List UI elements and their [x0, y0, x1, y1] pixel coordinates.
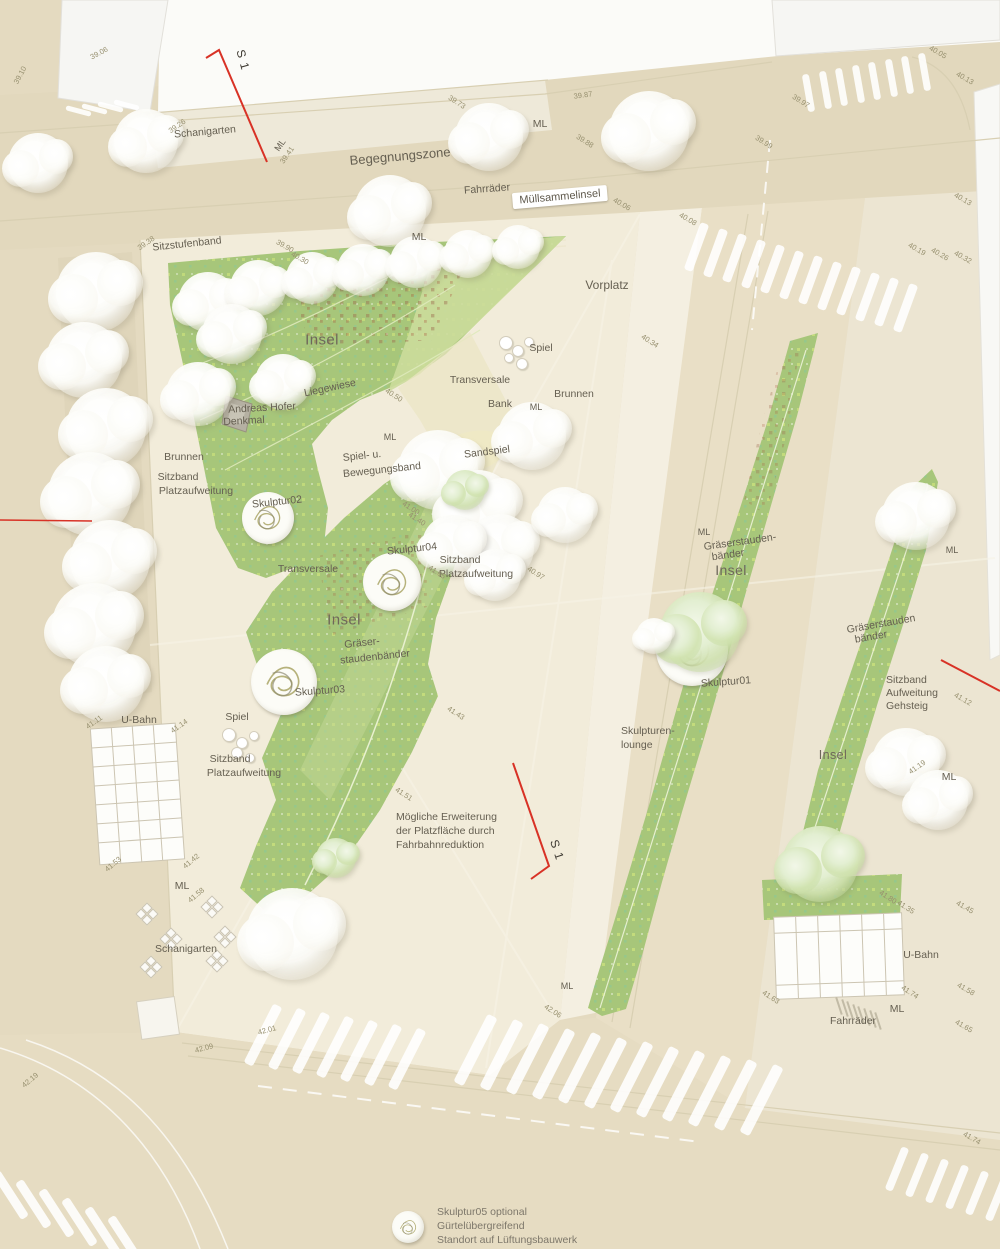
elevation-marker: 39.06: [89, 45, 110, 62]
elevation-marker: 39.90: [275, 237, 296, 254]
label-sitzband-4a: Sitzband: [886, 674, 927, 686]
label-ml-9: ML: [946, 545, 959, 555]
elevation-marker: 39.26: [167, 117, 188, 135]
elevation-marker: 41.58: [956, 980, 977, 997]
label-transversale-1: Transversale: [450, 374, 510, 386]
elevation-marker: 40.06: [612, 195, 633, 212]
label-brunnen-1: Brunnen: [554, 388, 594, 400]
label-sitzband-2b: Platzaufweitung: [439, 568, 513, 580]
elevation-marker: 40.05: [928, 43, 949, 60]
label-spielband-2: Bewegungsband: [342, 460, 421, 480]
elevation-marker: 42.01: [257, 1023, 277, 1037]
label-fahrraeder-2: Fahrräder: [830, 1015, 876, 1027]
label-lounge-1: Skulpturen-: [621, 725, 675, 737]
elevation-marker: 39.41: [278, 145, 296, 166]
elevation-marker: 41.11: [84, 713, 104, 731]
elevation-marker: 40.50: [384, 386, 405, 404]
label-skulptur04: Skulptur04: [386, 540, 437, 557]
elevation-marker: 40.19: [907, 240, 928, 257]
elevation-marker: 39.88: [575, 132, 596, 150]
label-schanigarten-2: Schanigarten: [155, 943, 217, 955]
labels-layer: SchanigartenMLBegegnungszoneFahrräderMLM…: [0, 0, 1000, 1249]
label-ml-2: ML: [533, 118, 548, 130]
label-begegnungszone: Begegnungszone: [349, 144, 451, 168]
elevation-marker: 41.14: [169, 717, 190, 735]
elevation-marker: 41.80: [878, 888, 899, 906]
label-sk05-2: Gürtelübergreifend: [437, 1220, 525, 1232]
label-sitzband-4c: Gehsteig: [886, 700, 928, 712]
elevation-marker: 41.65: [954, 1017, 975, 1034]
label-andreas-hofer-1: Andreas Hofer: [228, 400, 296, 416]
label-spiel-2: Spiel: [225, 711, 248, 723]
label-sitzband-1a: Sitzband: [158, 471, 199, 483]
label-sitzband-1b: Platzaufweitung: [159, 485, 233, 497]
label-erweiterung-1: Mögliche Erweiterung: [396, 811, 497, 823]
site-plan: SchanigartenMLBegegnungszoneFahrräderMLM…: [0, 0, 1000, 1249]
label-sitzstufenband: Sitzstufenband: [152, 234, 222, 253]
label-sitzband-3b: Platzaufweitung: [207, 767, 281, 779]
label-s1-top: S 1: [234, 48, 253, 72]
label-andreas-hofer-2: Denkmal: [223, 414, 265, 428]
elevation-marker: 41.42: [181, 852, 201, 871]
elevation-marker: 41.35: [896, 898, 917, 916]
label-sk05-3: Standort auf Lüftungsbauwerk: [437, 1234, 577, 1246]
label-ml-4: ML: [530, 402, 543, 412]
label-ubahn-2: U-Bahn: [903, 949, 939, 961]
label-sk05-1: Skulptur05 optional: [437, 1206, 527, 1218]
elevation-marker: 41.74: [962, 1129, 983, 1146]
elevation-marker: 39.97: [791, 92, 812, 110]
elevation-marker: 41.40: [407, 510, 428, 528]
label-liegewiese: Liegewiese: [303, 377, 357, 400]
elevation-marker: 40.97: [526, 564, 547, 582]
elevation-marker: 39.87: [573, 89, 593, 101]
elevation-marker: 40.32: [953, 248, 974, 265]
label-ml-6: ML: [175, 880, 190, 892]
label-schanigarten-top: Schanigarten: [174, 123, 237, 140]
label-skulptur01: Skulptur01: [701, 674, 752, 689]
label-ubahn-1: U-Bahn: [121, 714, 157, 726]
elevation-marker: 42.06: [543, 1002, 564, 1020]
elevation-marker: 41.65: [427, 563, 448, 581]
elevation-marker: 40.13: [955, 69, 976, 86]
label-spielband-1: Spiel- u.: [342, 448, 382, 464]
elevation-marker: 41.00: [401, 499, 422, 517]
label-muellsammelinsel: Müllsammelinsel: [512, 185, 608, 209]
label-erweiterung-2: der Platzfläche durch: [396, 825, 495, 837]
label-graeser-b1: Gräser-: [344, 635, 381, 651]
elevation-marker: 41.63: [761, 988, 782, 1006]
label-graeser-d2: bänder: [854, 628, 888, 645]
label-s1-bottom: S 1: [547, 838, 567, 862]
label-graeser-b2: staudenbänder: [340, 647, 411, 666]
elevation-marker: 39.38: [136, 234, 157, 252]
label-insel-a: Insel: [305, 332, 339, 349]
label-brunnen-2: Brunnen: [164, 451, 204, 463]
label-ml-7: ML: [698, 527, 711, 537]
label-graeser-c2: bänder: [711, 547, 745, 563]
elevation-marker: 41.45: [955, 898, 976, 915]
label-sitzband-3a: Sitzband: [210, 753, 251, 765]
label-ml-8: ML: [942, 771, 957, 783]
elevation-marker: 41.53: [103, 855, 123, 874]
elevation-marker: 39.10: [12, 65, 29, 86]
label-fahrraeder-top: Fahrräder: [464, 181, 511, 196]
label-erweiterung-3: Fahrbahnreduktion: [396, 839, 484, 851]
label-ml-10: ML: [890, 1003, 905, 1015]
elevation-marker: 41.12: [953, 690, 974, 707]
elevation-marker: 40.26: [930, 245, 951, 262]
label-bank: Bank: [488, 398, 512, 410]
elevation-marker: 40.34: [640, 332, 661, 350]
label-sandspiel: Sandspiel: [463, 443, 510, 461]
elevation-marker: 41.43: [446, 704, 467, 722]
label-ml-1: ML: [272, 137, 287, 153]
label-graeser-d1: Gräserstauden: [846, 612, 916, 636]
elevation-marker: 42.19: [20, 1071, 40, 1090]
elevation-marker: 40.13: [953, 190, 974, 207]
label-vorplatz: Vorplatz: [585, 278, 628, 292]
label-sitzband-4b: Aufweitung: [886, 687, 938, 699]
label-sitzband-2a: Sitzband: [440, 554, 481, 566]
label-graeser-c1: Gräserstauden-: [703, 531, 777, 553]
elevation-marker: 41.74: [900, 983, 921, 1001]
elevation-marker: 40.30: [290, 249, 311, 266]
label-ml-3: ML: [412, 231, 427, 243]
label-lounge-2: lounge: [621, 739, 653, 751]
elevation-marker: 39.73: [447, 93, 468, 111]
label-insel-b: Insel: [327, 612, 361, 629]
label-ml-11: ML: [561, 981, 574, 991]
label-insel-c: Insel: [715, 562, 747, 578]
label-ml-5: ML: [384, 432, 397, 442]
elevation-marker: 41.19: [907, 758, 928, 776]
elevation-marker: 41.58: [186, 886, 206, 905]
elevation-marker: 39.99: [754, 133, 775, 151]
elevation-marker: 41.51: [394, 785, 415, 803]
label-spiel-1: Spiel: [529, 342, 552, 354]
elevation-marker: 40.08: [678, 210, 699, 227]
elevation-marker: 42.09: [194, 1041, 214, 1055]
label-insel-d: Insel: [819, 748, 847, 762]
label-skulptur02: Skulptur02: [251, 493, 302, 510]
label-transversale-2: Transversale: [278, 563, 338, 575]
label-skulptur03: Skulptur03: [295, 683, 346, 698]
